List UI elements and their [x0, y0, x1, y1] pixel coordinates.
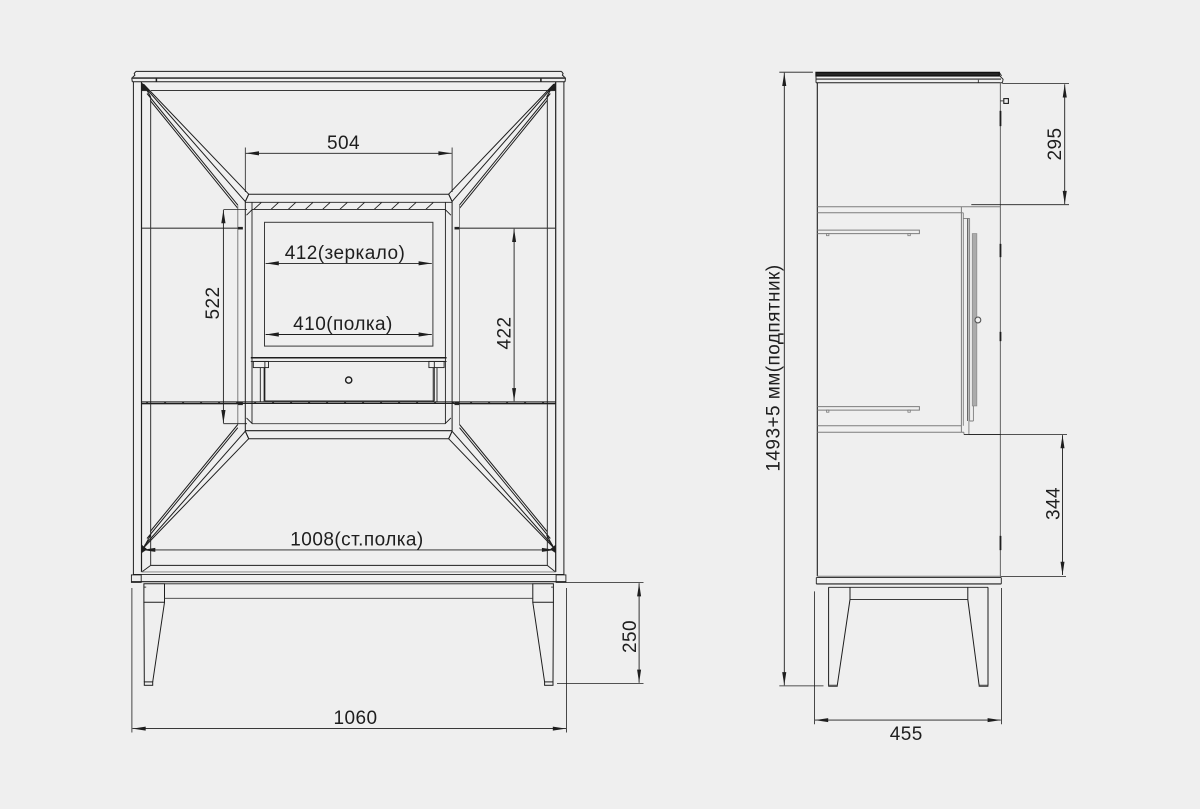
- svg-text:1008(ст.полка): 1008(ст.полка): [290, 530, 423, 551]
- svg-text:522: 522: [203, 286, 224, 319]
- svg-text:250: 250: [620, 620, 641, 653]
- svg-text:422: 422: [495, 316, 516, 349]
- svg-text:455: 455: [890, 724, 923, 745]
- svg-text:344: 344: [1044, 487, 1065, 520]
- svg-text:295: 295: [1045, 127, 1066, 160]
- svg-text:1493+5 мм(подпятник): 1493+5 мм(подпятник): [764, 264, 785, 471]
- svg-text:412(зеркало): 412(зеркало): [285, 243, 406, 264]
- svg-text:410(полка): 410(полка): [293, 314, 393, 335]
- svg-text:504: 504: [327, 133, 360, 154]
- svg-text:1060: 1060: [333, 708, 377, 729]
